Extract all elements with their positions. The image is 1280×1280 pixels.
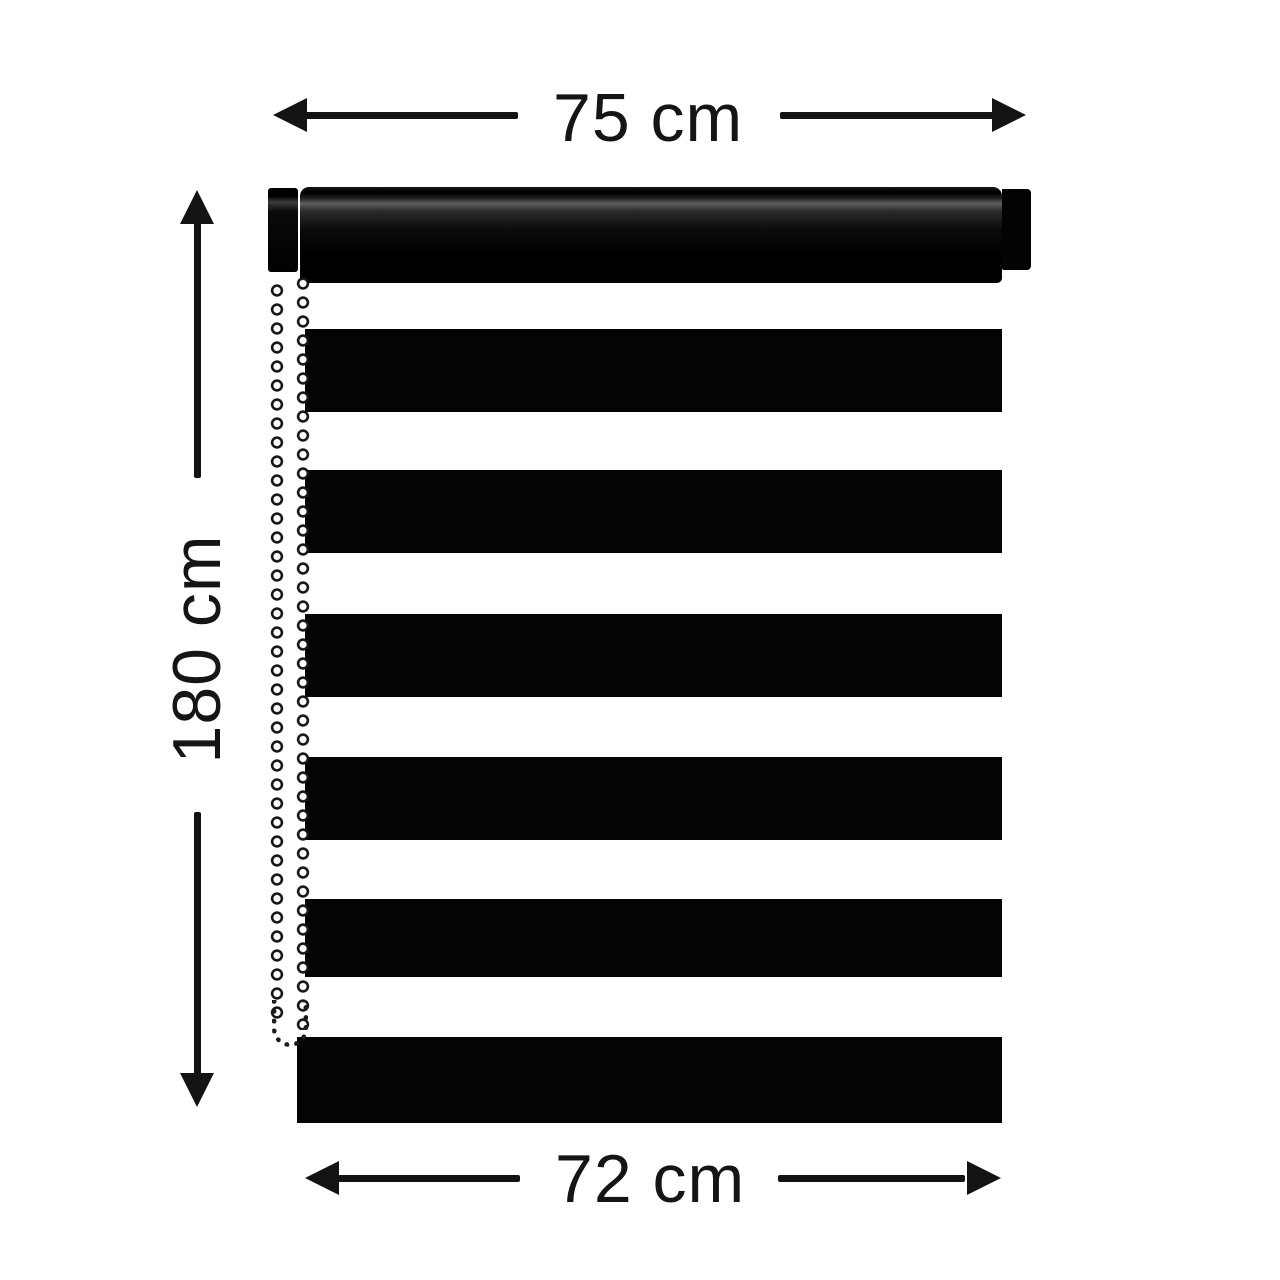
fabric-stripe xyxy=(305,899,1002,977)
bottom-arrow-line-right xyxy=(778,1175,965,1182)
fabric-stripe xyxy=(297,1037,1002,1123)
bottom-arrowhead-left-icon xyxy=(305,1161,339,1195)
left-mounting-bracket xyxy=(268,188,298,272)
height-arrow-line-lower xyxy=(194,812,201,1078)
top-width-label: 75 cm xyxy=(553,84,743,152)
fabric-stripe xyxy=(305,757,1002,840)
bead-chain-loop xyxy=(272,1000,308,1047)
bottom-arrowhead-right-icon xyxy=(967,1161,1001,1195)
height-arrow-line-upper xyxy=(194,222,201,478)
top-arrow-line-right xyxy=(780,112,997,119)
height-arrowhead-up-icon xyxy=(180,190,214,224)
headrail-roller-tube xyxy=(300,187,1002,283)
fabric-stripe xyxy=(305,329,1002,412)
bead-chain-left-strand xyxy=(269,281,285,1021)
right-mounting-bracket xyxy=(1002,189,1031,270)
fabric-stripe xyxy=(305,614,1002,697)
height-arrowhead-down-icon xyxy=(180,1073,214,1107)
blind-dimension-diagram: 75 cm 180 cm 72 cm xyxy=(0,0,1280,1280)
top-arrow-line-left xyxy=(305,112,518,119)
bottom-arrow-line-left xyxy=(337,1175,520,1182)
top-arrowhead-left-icon xyxy=(273,98,307,132)
top-arrowhead-right-icon xyxy=(992,98,1026,132)
bottom-width-label: 72 cm xyxy=(555,1145,745,1213)
fabric-stripe xyxy=(305,470,1002,553)
height-label: 180 cm xyxy=(163,535,231,764)
bead-chain-right-strand xyxy=(295,274,311,1030)
